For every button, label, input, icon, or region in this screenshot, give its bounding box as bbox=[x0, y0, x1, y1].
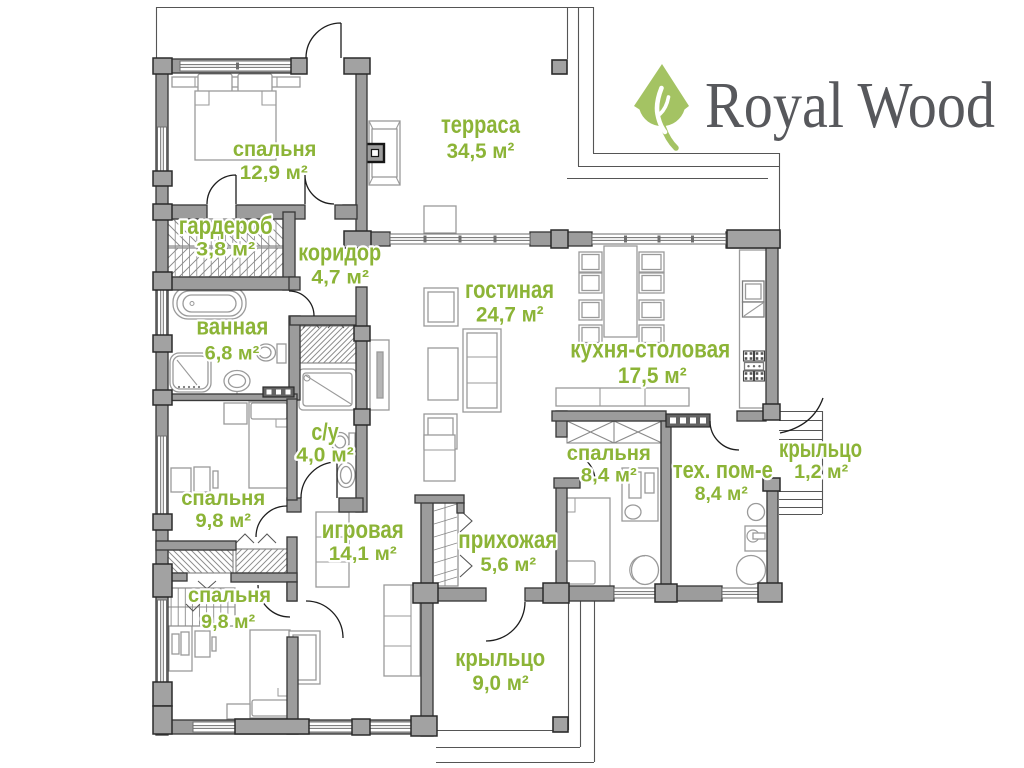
svg-text:терраса: терраса bbox=[441, 111, 521, 139]
svg-text:4,0 м²: 4,0 м² bbox=[296, 445, 354, 467]
svg-text:Royal Wood: Royal Wood bbox=[705, 69, 995, 142]
svg-text:с/у: с/у bbox=[311, 419, 339, 446]
svg-text:4,7 м²: 4,7 м² bbox=[311, 267, 369, 289]
svg-text:гостиная: гостиная bbox=[465, 276, 554, 304]
svg-text:14,1 м²: 14,1 м² bbox=[329, 543, 398, 565]
svg-text:крыльцо: крыльцо bbox=[779, 435, 862, 463]
svg-text:9,8 м²: 9,8 м² bbox=[201, 611, 256, 633]
svg-text:8,4 м²: 8,4 м² bbox=[581, 465, 638, 487]
svg-text:24,7 м²: 24,7 м² bbox=[476, 303, 544, 327]
svg-text:8,4 м²: 8,4 м² bbox=[695, 483, 748, 505]
svg-text:тех. пом-е: тех. пом-е bbox=[673, 457, 773, 484]
svg-text:гардероб: гардероб bbox=[179, 212, 273, 240]
svg-text:кухня-столовая: кухня-столовая bbox=[570, 336, 730, 364]
svg-text:34,5 м²: 34,5 м² bbox=[447, 139, 515, 163]
svg-text:5,6 м²: 5,6 м² bbox=[480, 555, 536, 576]
svg-text:спальня: спальня bbox=[233, 137, 317, 161]
svg-text:спальня: спальня bbox=[567, 441, 651, 465]
svg-text:12,9 м²: 12,9 м² bbox=[240, 163, 308, 184]
svg-text:спальня: спальня bbox=[188, 583, 271, 607]
svg-text:прихожая: прихожая bbox=[458, 527, 557, 554]
svg-text:спальня: спальня bbox=[181, 486, 265, 510]
svg-text:6,8 м²: 6,8 м² bbox=[205, 343, 260, 365]
svg-text:1,2 м²: 1,2 м² bbox=[794, 461, 849, 483]
svg-text:9,8 м²: 9,8 м² bbox=[195, 510, 251, 532]
svg-text:3,8 м²: 3,8 м² bbox=[196, 239, 256, 261]
svg-text:коридор: коридор bbox=[298, 240, 381, 267]
svg-text:игровая: игровая bbox=[322, 516, 404, 544]
svg-text:9,0 м²: 9,0 м² bbox=[472, 672, 528, 695]
svg-text:ванная: ванная bbox=[196, 314, 268, 341]
svg-text:17,5 м²: 17,5 м² bbox=[618, 363, 687, 388]
svg-text:крыльцо: крыльцо bbox=[455, 645, 545, 672]
